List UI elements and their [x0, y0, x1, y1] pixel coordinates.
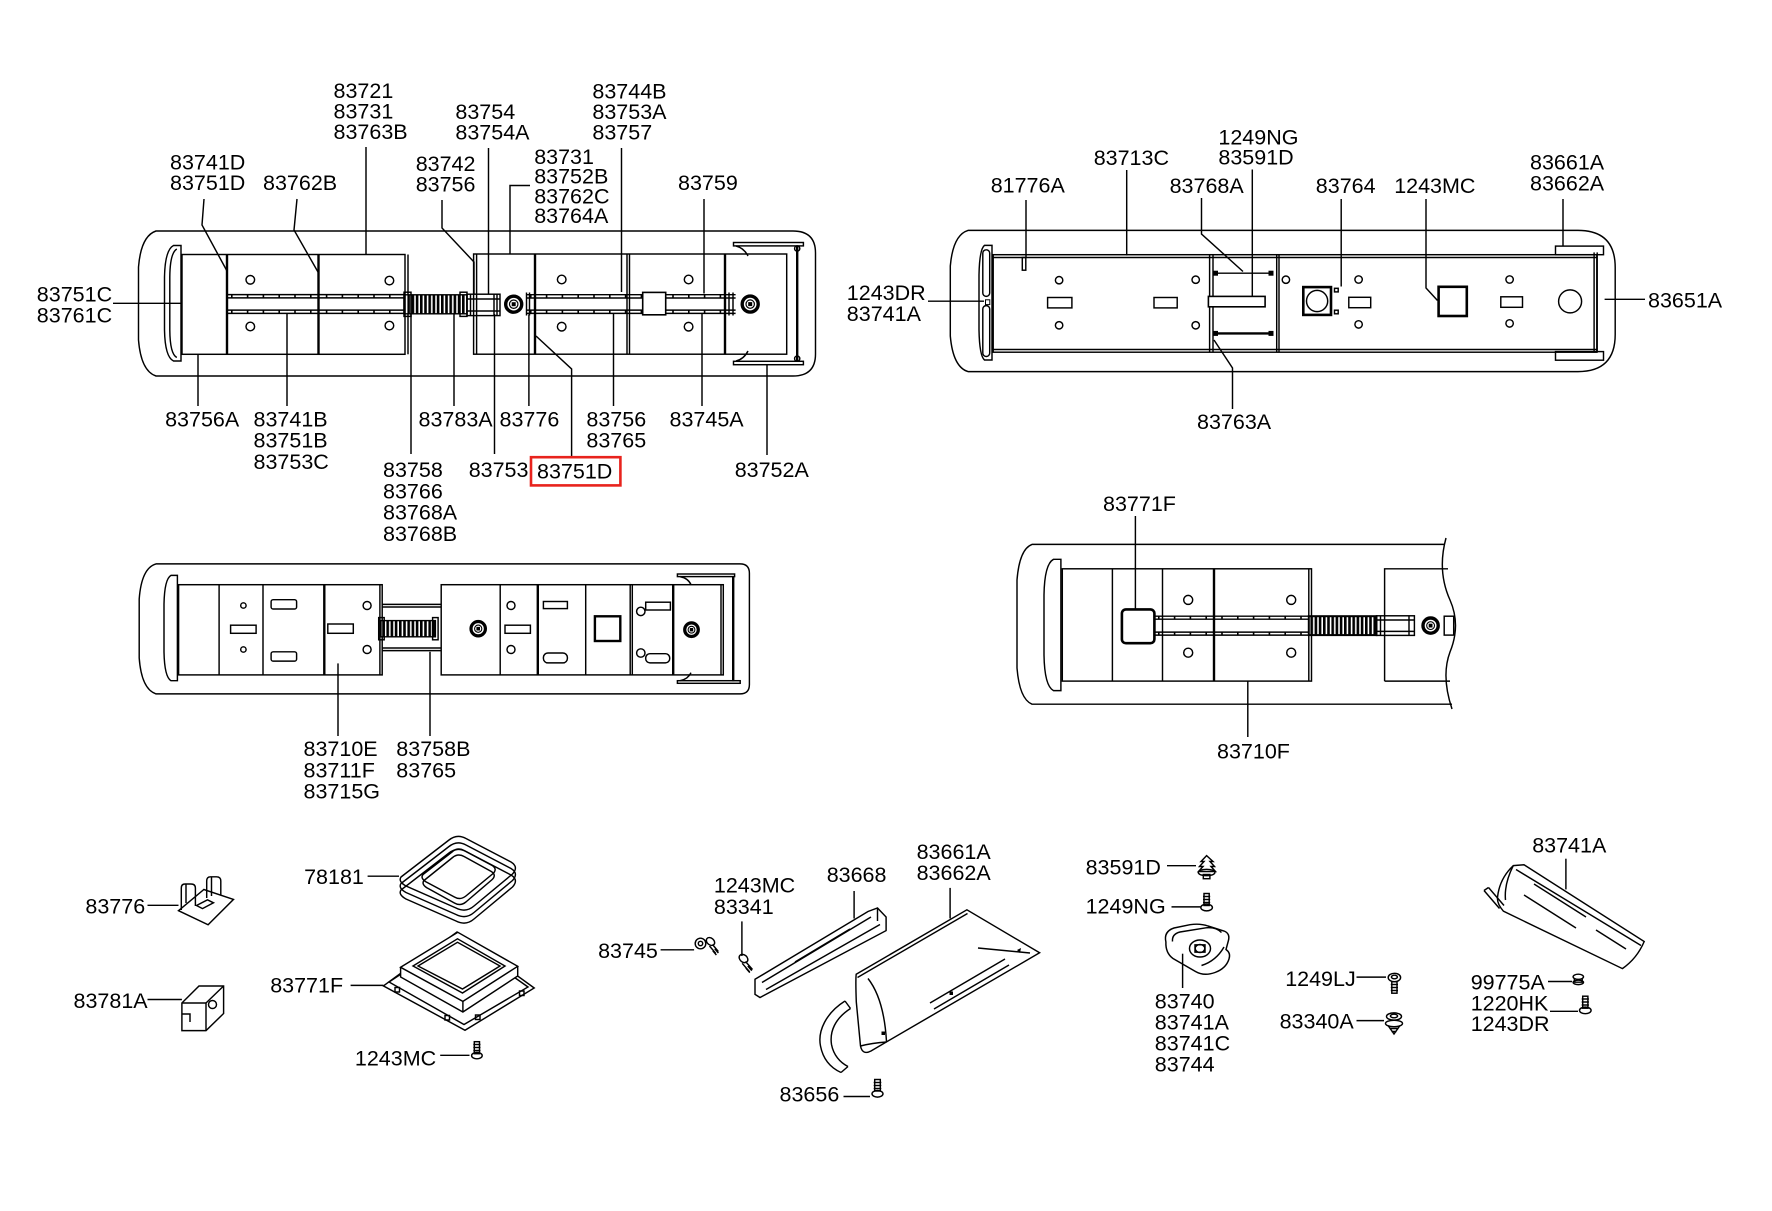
svg-text:83591D: 83591D: [1086, 856, 1161, 880]
svg-text:83781A: 83781A: [74, 989, 149, 1013]
svg-text:83741A: 83741A: [1532, 834, 1607, 858]
svg-text:1243MC: 1243MC: [355, 1046, 436, 1070]
svg-text:1243MC: 1243MC: [1394, 174, 1475, 198]
svg-text:83340A: 83340A: [1280, 1009, 1355, 1033]
svg-text:1249LJ: 1249LJ: [1285, 967, 1356, 991]
svg-text:8375683765: 8375683765: [586, 407, 646, 452]
svg-text:83763A: 83763A: [1197, 410, 1272, 434]
svg-text:83713C: 83713C: [1094, 146, 1169, 170]
svg-text:83656: 83656: [780, 1082, 840, 1106]
svg-text:83751D: 83751D: [537, 460, 612, 484]
svg-text:99775A1220HK1243DR: 99775A1220HK1243DR: [1471, 971, 1550, 1037]
svg-text:83745A: 83745A: [670, 407, 745, 431]
svg-text:83710E83711F83715G: 83710E83711F83715G: [304, 737, 381, 804]
svg-text:1249NG: 1249NG: [1086, 895, 1166, 919]
svg-text:83752A: 83752A: [735, 458, 810, 482]
svg-text:83759: 83759: [678, 171, 738, 195]
svg-text:83668: 83668: [827, 863, 887, 887]
svg-text:83771F: 83771F: [1103, 492, 1176, 516]
svg-text:83751C83761C: 83751C83761C: [37, 282, 112, 327]
svg-text:83776: 83776: [500, 407, 560, 431]
svg-text:83661A83662A: 83661A83662A: [1530, 150, 1605, 195]
svg-text:83741B83751B83753C: 83741B83751B83753C: [254, 407, 329, 474]
svg-text:83745: 83745: [598, 939, 658, 963]
svg-text:83710F: 83710F: [1217, 740, 1290, 764]
svg-text:83768A: 83768A: [1170, 174, 1245, 198]
svg-text:83776: 83776: [85, 895, 145, 919]
svg-text:83783A: 83783A: [419, 407, 494, 431]
svg-text:1249NG83591D: 1249NG83591D: [1218, 125, 1298, 169]
svg-text:83753: 83753: [469, 458, 529, 482]
svg-text:83771F: 83771F: [270, 974, 343, 998]
svg-text:78181: 78181: [304, 865, 364, 889]
svg-text:1243DR83741A: 1243DR83741A: [847, 281, 926, 326]
svg-text:83762B: 83762B: [263, 171, 337, 195]
svg-text:83764: 83764: [1316, 174, 1376, 198]
svg-text:83756A: 83756A: [165, 407, 240, 431]
svg-text:81776A: 81776A: [991, 174, 1066, 198]
svg-text:83651A: 83651A: [1648, 289, 1723, 313]
svg-text:83741D83751D: 83741D83751D: [170, 150, 245, 195]
svg-text:83661A83662A: 83661A83662A: [917, 840, 992, 885]
svg-text:8374283756: 8374283756: [416, 152, 476, 197]
